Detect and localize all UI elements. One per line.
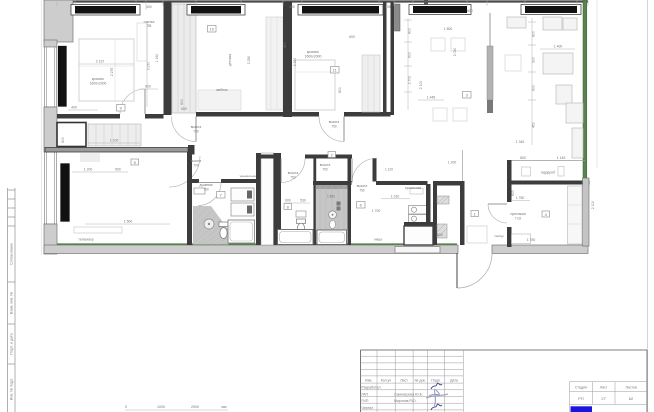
svg-text:300: 300 <box>532 57 536 63</box>
svg-text:Стадия: Стадия <box>575 386 587 390</box>
svg-text:3 270: 3 270 <box>147 62 151 71</box>
svg-text:600: 600 <box>145 85 151 89</box>
svg-text:400: 400 <box>283 42 287 48</box>
svg-text:ГАП: ГАП <box>362 392 369 396</box>
svg-text:2 137: 2 137 <box>96 60 105 64</box>
svg-text:Изм.: Изм. <box>365 379 373 383</box>
svg-text:400: 400 <box>146 5 152 9</box>
svg-text:кровать: кровать <box>307 50 319 54</box>
svg-text:ГИП: ГИП <box>362 399 369 403</box>
svg-text:27: 27 <box>601 396 606 401</box>
svg-text:высота: высота <box>329 120 340 124</box>
svg-text:600: 600 <box>532 85 536 91</box>
svg-text:2 290: 2 290 <box>293 58 297 67</box>
svg-text:600: 600 <box>180 99 184 105</box>
svg-text:800: 800 <box>520 156 526 160</box>
svg-text:1 100: 1 100 <box>110 139 119 143</box>
svg-text:прихожая: прихожая <box>510 212 525 216</box>
svg-text:400: 400 <box>71 106 77 110</box>
svg-text:Кол.уч: Кол.уч <box>381 379 392 383</box>
svg-text:Подп.: Подп. <box>431 379 440 383</box>
svg-text:мм: мм <box>222 405 227 409</box>
svg-text:Самохерова Ю.Б.: Самохерова Ю.Б. <box>394 392 423 396</box>
svg-text:Дата: Дата <box>450 379 458 383</box>
svg-text:1 200: 1 200 <box>448 161 457 165</box>
svg-text:600: 600 <box>467 9 473 13</box>
svg-text:750: 750 <box>359 189 365 193</box>
svg-text:10: 10 <box>209 27 214 32</box>
svg-text:Согласовано: Согласовано <box>10 243 14 265</box>
svg-text:1600х2000: 1600х2000 <box>90 82 107 86</box>
svg-text:7.02: 7.02 <box>515 217 522 221</box>
svg-text:1 850: 1 850 <box>327 195 335 199</box>
svg-text:умывальник: умывальник <box>240 174 258 178</box>
svg-text:1 140: 1 140 <box>557 156 566 160</box>
svg-text:700: 700 <box>193 164 199 168</box>
svg-text:1 160: 1 160 <box>155 54 159 63</box>
svg-text:600: 600 <box>511 190 515 196</box>
svg-text:Разработал: Разработал <box>362 386 381 390</box>
svg-text:высота: высота <box>288 171 299 175</box>
svg-text:ПВ: ПВ <box>147 24 152 28</box>
svg-text:2000: 2000 <box>191 405 199 409</box>
svg-text:500: 500 <box>115 168 121 172</box>
svg-text:600: 600 <box>61 137 65 143</box>
svg-text:высота: высота <box>191 159 202 163</box>
svg-text:2 100: 2 100 <box>591 201 595 210</box>
svg-text:1000: 1000 <box>157 405 165 409</box>
svg-text:ниша: ниша <box>374 238 382 242</box>
svg-text:0: 0 <box>125 405 127 409</box>
svg-text:душевая: душевая <box>200 183 213 187</box>
svg-text:800: 800 <box>532 31 536 37</box>
svg-text:РП: РП <box>578 396 584 401</box>
svg-text:1 800: 1 800 <box>444 27 453 31</box>
svg-text:62: 62 <box>629 396 634 401</box>
svg-text:1 445: 1 445 <box>427 96 436 100</box>
svg-text:750: 750 <box>331 125 337 129</box>
svg-text:400: 400 <box>385 5 391 9</box>
svg-text:1 700: 1 700 <box>372 209 381 213</box>
svg-text:750: 750 <box>290 176 296 180</box>
svg-text:Лист: Лист <box>400 379 408 383</box>
svg-text:600: 600 <box>408 52 412 58</box>
svg-text:гардероб: гардероб <box>541 171 555 175</box>
svg-text:1 780: 1 780 <box>527 238 536 242</box>
svg-text:высота: высота <box>320 163 331 167</box>
svg-text:750: 750 <box>193 130 199 134</box>
svg-text:Подп. и дата: Подп. и дата <box>10 333 14 354</box>
svg-text:2 100: 2 100 <box>419 81 423 90</box>
svg-text:сушильная: сушильная <box>405 186 422 190</box>
svg-text:600: 600 <box>285 199 291 203</box>
svg-text:Инв. № подл.: Инв. № подл. <box>10 378 14 400</box>
svg-text:600: 600 <box>349 35 355 39</box>
svg-text:высота: высота <box>357 184 368 188</box>
svg-text:450: 450 <box>532 122 536 128</box>
svg-text:Лист: Лист <box>600 386 608 390</box>
svg-text:600: 600 <box>437 233 443 237</box>
svg-text:530: 530 <box>300 199 306 203</box>
svg-text:750: 750 <box>322 168 328 172</box>
svg-text:1 780: 1 780 <box>516 196 525 200</box>
svg-text:1 010: 1 010 <box>391 195 400 199</box>
svg-text:750: 750 <box>203 188 209 192</box>
svg-text:мебель: мебель <box>216 88 228 92</box>
svg-text:800: 800 <box>338 87 342 93</box>
svg-text:Миронов Р.Ю.: Миронов Р.Ю. <box>394 399 417 403</box>
svg-text:1600х2000: 1600х2000 <box>305 55 322 59</box>
svg-text:2 030: 2 030 <box>453 48 457 57</box>
svg-text:Чертил: Чертил <box>362 406 374 410</box>
svg-text:телевизор: телевизор <box>78 238 93 242</box>
svg-text:1 120: 1 120 <box>385 168 393 172</box>
svg-text:2 290: 2 290 <box>247 56 251 65</box>
svg-text:2 275: 2 275 <box>110 68 114 77</box>
svg-text:1 400: 1 400 <box>554 45 563 49</box>
svg-text:600: 600 <box>181 107 187 111</box>
svg-text:тамбур: тамбур <box>494 234 504 238</box>
svg-text:1 500: 1 500 <box>124 220 133 224</box>
svg-text:высота: высота <box>191 125 202 129</box>
svg-text:400: 400 <box>289 5 295 9</box>
svg-text:детская: детская <box>228 54 232 66</box>
svg-text:№ док.: № док. <box>415 379 426 383</box>
svg-text:1 345: 1 345 <box>516 140 525 144</box>
svg-text:2 700: 2 700 <box>408 76 412 85</box>
svg-text:1 200: 1 200 <box>84 168 93 172</box>
svg-text:кровать: кровать <box>92 77 104 81</box>
svg-text:Листов: Листов <box>625 386 637 390</box>
svg-text:800: 800 <box>408 28 412 34</box>
svg-text:Взам. инв. №: Взам. инв. № <box>10 292 14 314</box>
